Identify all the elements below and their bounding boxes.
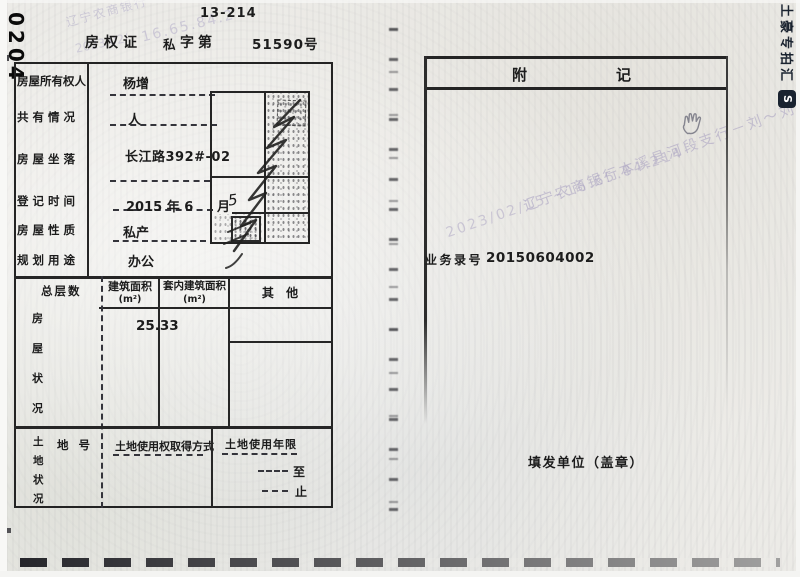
row-label-co-ownership: 共 有 情 况: [17, 109, 89, 125]
row-label-location: 房 屋 坐 落: [17, 151, 89, 167]
scanned-property-certificate: 辽宁农商银行 16.65.84.2 2023/02/ 0204 13-214 房…: [0, 0, 800, 577]
column-header-total-floors: 总层数: [41, 283, 82, 299]
certificate-zidi-label: 字第: [180, 32, 216, 52]
handwritten-signature: [198, 84, 333, 279]
column-divider-dashed: [101, 276, 103, 508]
house-nature-value: 私产: [123, 222, 149, 241]
certificate-category: 私: [163, 34, 176, 53]
side-label-house-status: 房 屋 状 况: [32, 310, 46, 430]
brand-app-icon: S: [779, 90, 797, 108]
other-cell-divider: [229, 341, 333, 343]
column-header-other: 其 他: [231, 284, 333, 301]
business-number-value: 20150604002: [486, 250, 595, 266]
watermark-date-ip-line: 2023/02/15 ~16.65.84.214: [444, 144, 686, 241]
column-header-land-tenure: 土地使用年限: [225, 436, 297, 452]
side-char: 状: [33, 472, 47, 487]
film-dash-fade: [20, 558, 780, 567]
owner-name-value: 杨增: [123, 73, 149, 92]
inner-area-text: 套内建筑面积: [160, 280, 229, 293]
column-divider: [228, 276, 230, 426]
watermark-bank-name-left: 辽宁农商银行: [64, 0, 150, 30]
side-label-land-status: 土 地 状 况: [33, 434, 47, 510]
side-char: 况: [32, 400, 46, 416]
certificate-serial-number: 51590号: [252, 33, 318, 53]
column-header-building-area: 建筑面积 (m²): [101, 280, 159, 306]
appendix-box-top-border: [425, 56, 728, 59]
side-char: 况: [33, 491, 47, 506]
column-header-land-acquisition: 土地使用权取得方式: [115, 438, 214, 454]
page-code: 13-214: [200, 6, 257, 21]
issuing-unit-label: 填发单位（盖章）: [528, 452, 644, 471]
page-edge-left: [0, 0, 7, 577]
tenure-end-label: 止: [295, 483, 307, 500]
page-edge-right: [796, 0, 800, 577]
appendix-box-left-border: [424, 56, 427, 424]
appendix-box-right-border: [726, 56, 728, 411]
building-area-value: 25.33: [136, 318, 179, 334]
column-header-inner-area: 套内建筑面积 (m²): [160, 280, 229, 306]
business-number-label: 业务录号: [425, 251, 483, 268]
appendix-title-char-2: 记: [616, 64, 631, 85]
section-divider: [14, 426, 333, 429]
row-label-owner: 房屋所有权人: [17, 73, 89, 89]
co-ownership-value: 人: [128, 109, 141, 128]
page-edge-bottom: [0, 571, 800, 577]
label-column-divider: [87, 62, 89, 278]
appendix-header-underline: [425, 87, 728, 90]
row-label-house-nature: 房 屋 性 质: [17, 222, 89, 238]
building-area-unit: (m²): [101, 293, 159, 306]
planned-use-value: 办公: [128, 251, 154, 270]
appendix-title-char-1: 附: [512, 64, 527, 85]
side-char: 房: [32, 310, 46, 326]
column-divider: [211, 426, 213, 508]
header-underline: [99, 307, 333, 309]
column-header-parcel-number: 地 号: [57, 437, 93, 453]
row-label-registration-date: 登 记 时 间: [17, 193, 89, 209]
column-divider: [158, 276, 160, 426]
side-char: 土: [33, 434, 47, 449]
building-area-text: 建筑面积: [101, 280, 159, 293]
tenure-to-label: 至: [293, 463, 305, 480]
side-brand-text: 土豪专拍汇: [778, 4, 797, 84]
row-label-planned-use: 规 划 用 途: [17, 252, 89, 268]
certificate-title: 房权证: [85, 32, 142, 52]
side-char: 地: [33, 453, 47, 468]
side-brand-watermark: 土豪专拍汇 S: [778, 4, 797, 108]
book-spine-marks: [389, 28, 398, 533]
side-char: 状: [32, 370, 46, 386]
registration-date-value: 2015 年 6: [126, 196, 193, 215]
page-edge-top: [0, 0, 800, 3]
side-char: 屋: [32, 340, 46, 356]
inner-area-unit: (m²): [160, 293, 229, 306]
